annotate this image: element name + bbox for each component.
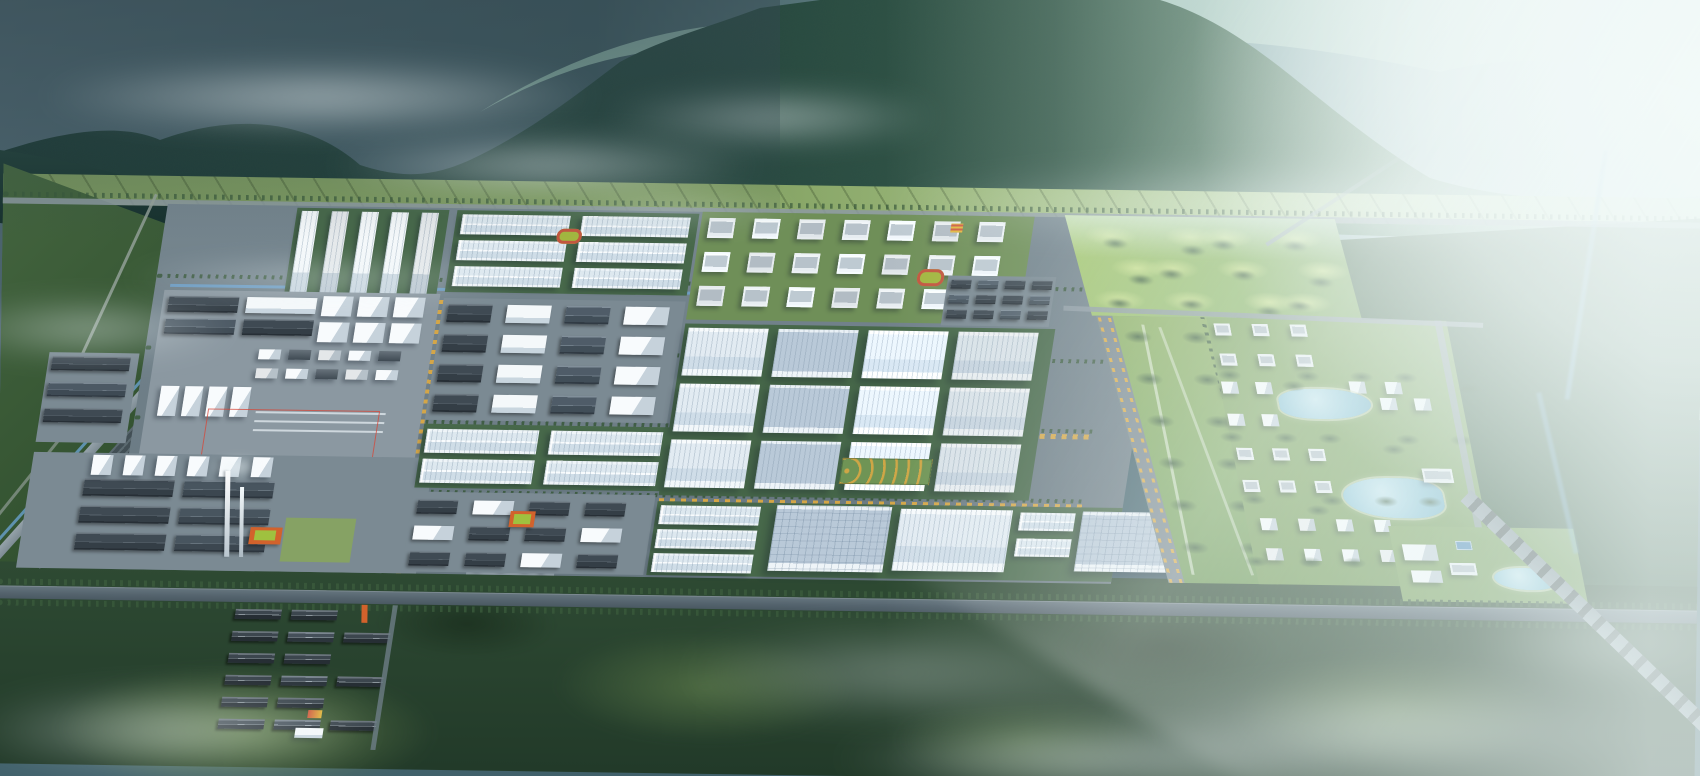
factory-hall bbox=[43, 408, 123, 423]
farmland-fringe bbox=[3, 173, 1700, 228]
unit-roof bbox=[500, 335, 547, 354]
unit-roof bbox=[441, 334, 488, 353]
apartment-block bbox=[1278, 480, 1296, 492]
tank-farm bbox=[466, 528, 561, 575]
logistics-hall bbox=[951, 332, 1038, 381]
tree-clump bbox=[1449, 435, 1475, 446]
tree-clump bbox=[1229, 270, 1258, 281]
mega-hall bbox=[1074, 511, 1193, 573]
tree-clump bbox=[1101, 238, 1130, 249]
tree-clump bbox=[1237, 542, 1269, 555]
mega-hall bbox=[891, 509, 1013, 573]
color-accent bbox=[307, 710, 322, 718]
yard-road bbox=[370, 605, 398, 750]
tree-clump bbox=[1273, 432, 1299, 443]
tree-clump bbox=[1122, 330, 1154, 343]
mixed-industry-block bbox=[425, 298, 686, 423]
apartment-block bbox=[1236, 448, 1254, 460]
golf-haze bbox=[1065, 215, 1346, 261]
storage-shed bbox=[228, 653, 276, 664]
apartment-block bbox=[1374, 520, 1392, 532]
cloud-bank bbox=[600, 90, 940, 145]
forest-mist bbox=[1100, 688, 1660, 776]
storage-tank-small bbox=[538, 563, 548, 572]
slant-bar-warehouses bbox=[283, 208, 450, 306]
plant-midrise bbox=[353, 323, 386, 343]
logistics-hall bbox=[861, 330, 948, 379]
road-tree-line bbox=[145, 346, 1106, 364]
tree-clump bbox=[1341, 557, 1367, 568]
process-units bbox=[378, 351, 402, 361]
apartment-block bbox=[1380, 550, 1398, 562]
storage-shed-yard bbox=[204, 603, 412, 753]
dormitory-court-block bbox=[887, 221, 916, 241]
tree-clump bbox=[1417, 496, 1443, 507]
tree-clump bbox=[1179, 541, 1211, 554]
tall-silo bbox=[123, 455, 146, 475]
unit-roof bbox=[1031, 281, 1052, 290]
main-mountain-texture bbox=[0, 0, 1700, 245]
chimney bbox=[224, 471, 230, 557]
sky-and-mountains-backdrop bbox=[0, 0, 1700, 776]
red-boundary-line bbox=[200, 408, 380, 460]
storage-tank bbox=[498, 533, 516, 549]
dormitory-court-block bbox=[696, 286, 725, 306]
industrial-park-base bbox=[111, 204, 1168, 584]
unit-roof bbox=[491, 395, 538, 414]
cloud-bank bbox=[330, 135, 760, 195]
apartment-block bbox=[1261, 414, 1279, 426]
moss-patch bbox=[894, 695, 1155, 776]
apartment-block bbox=[1260, 518, 1278, 530]
tall-silo bbox=[187, 456, 210, 476]
residential-ring-road bbox=[1434, 321, 1494, 588]
plant-midrise bbox=[321, 296, 354, 316]
unit-roof bbox=[614, 367, 661, 386]
school-building bbox=[1449, 563, 1477, 575]
yellow-tree-avenue bbox=[396, 298, 444, 573]
long-hall-roof bbox=[424, 429, 540, 455]
tree-clump bbox=[1203, 415, 1235, 428]
storage-shed bbox=[273, 720, 321, 731]
unit-roof bbox=[559, 336, 606, 355]
tree-clump bbox=[1255, 306, 1284, 317]
sun-glare-core bbox=[1050, 0, 1700, 580]
unit-roof bbox=[412, 526, 454, 541]
dormitory-court-block bbox=[791, 253, 820, 273]
tree-clump bbox=[1156, 457, 1188, 470]
running-track bbox=[916, 269, 946, 286]
dormitory-court-block bbox=[966, 290, 995, 310]
railway-yard bbox=[20, 260, 301, 569]
unit-roof bbox=[618, 337, 665, 356]
golf-mound bbox=[1081, 225, 1138, 246]
boiler-house bbox=[181, 386, 204, 416]
country-lane bbox=[0, 384, 104, 530]
sports-court bbox=[1455, 541, 1473, 550]
tree-clump bbox=[1226, 500, 1258, 513]
low-row-housing bbox=[1400, 542, 1436, 551]
apartment-block bbox=[1213, 323, 1231, 335]
logistics-hall bbox=[771, 329, 858, 378]
atmosphere-overlay bbox=[0, 0, 1700, 776]
dormitory-court-block bbox=[932, 221, 961, 241]
cloud-bank bbox=[40, 60, 600, 132]
apartment-block bbox=[1257, 354, 1275, 366]
left-forest-slope bbox=[0, 163, 343, 604]
plant-hall bbox=[242, 319, 314, 336]
tree-clump bbox=[1177, 299, 1206, 310]
apartment-block bbox=[1219, 353, 1237, 365]
unit-roof bbox=[468, 526, 510, 541]
unit-roof bbox=[505, 305, 552, 324]
long-hall-roof bbox=[543, 461, 659, 487]
apartment-block bbox=[1304, 549, 1322, 561]
white-shed bbox=[294, 728, 324, 738]
unit-roof bbox=[524, 527, 566, 542]
boulevard bbox=[1096, 316, 1184, 583]
chemical-plant-lower bbox=[16, 452, 434, 574]
boiler-house bbox=[205, 386, 228, 416]
tree-line-edge bbox=[1200, 317, 1276, 584]
tree-clump bbox=[1349, 371, 1375, 382]
apartment-block bbox=[1380, 398, 1398, 410]
lower-mixed-block bbox=[401, 492, 655, 575]
unit-roof bbox=[580, 528, 622, 543]
residential-quarter bbox=[1206, 317, 1499, 587]
golf-mound bbox=[1144, 258, 1201, 279]
pipe-rack bbox=[253, 429, 383, 433]
storage-shed bbox=[336, 676, 384, 687]
pipe-rack bbox=[254, 420, 384, 424]
tree-clump bbox=[1168, 499, 1200, 512]
tree-clump bbox=[1217, 369, 1243, 380]
unit-roof bbox=[555, 366, 602, 385]
logistics-hall bbox=[844, 442, 931, 491]
south-hall-row bbox=[646, 501, 1122, 582]
sun-light-beam bbox=[859, 0, 1700, 776]
se-highway bbox=[1461, 490, 1700, 736]
apartment-block bbox=[1336, 519, 1354, 531]
dormitory-court-block bbox=[836, 254, 865, 274]
dormitory-court-block bbox=[707, 218, 736, 238]
golf-mound bbox=[1241, 292, 1298, 313]
plant-hall bbox=[167, 296, 239, 313]
unit-roof bbox=[975, 295, 996, 304]
low-row-housing bbox=[1442, 543, 1478, 552]
factory-hall bbox=[182, 480, 275, 498]
tree-clump bbox=[1191, 373, 1223, 386]
unit-roof bbox=[564, 306, 611, 325]
aerial-industrial-park-rendering bbox=[0, 0, 1700, 776]
right-atmospheric-haze bbox=[0, 0, 1700, 776]
warehouse-bar bbox=[288, 211, 319, 299]
unit-roof bbox=[584, 502, 626, 517]
boiler-house bbox=[229, 387, 252, 417]
dormitory-court-block bbox=[786, 287, 815, 307]
apartment-block bbox=[1308, 449, 1326, 461]
process-units bbox=[315, 369, 339, 379]
process-units bbox=[258, 349, 282, 359]
golf-mound bbox=[1277, 292, 1334, 313]
plant-hall bbox=[245, 297, 317, 314]
factory-hall bbox=[47, 382, 127, 397]
tree-clump bbox=[1219, 431, 1245, 442]
dark-copse bbox=[376, 587, 557, 660]
pond bbox=[1276, 388, 1374, 419]
long-hall-roof bbox=[419, 459, 535, 485]
warehouse-roof bbox=[456, 240, 567, 262]
tree-clump bbox=[1305, 505, 1331, 516]
unit-roof bbox=[472, 500, 514, 515]
unit-roof bbox=[973, 310, 994, 319]
logistics-hall-grid bbox=[659, 324, 1056, 501]
apartment-block bbox=[1221, 382, 1239, 394]
warehouse-roof bbox=[572, 268, 683, 290]
unit-roof bbox=[496, 365, 543, 384]
logistics-hall bbox=[763, 385, 850, 434]
forest-mist bbox=[0, 690, 380, 772]
factory-hall bbox=[174, 534, 267, 552]
factory-hall bbox=[82, 479, 175, 497]
dormitory-court-block bbox=[842, 220, 871, 240]
golf-mound bbox=[1267, 228, 1324, 249]
country-lane bbox=[65, 194, 158, 390]
tree-clump bbox=[1405, 568, 1431, 579]
warehouse-bar bbox=[348, 212, 379, 300]
unit-roof bbox=[946, 309, 967, 318]
dormitory-court-block bbox=[876, 288, 905, 308]
apartment-block bbox=[1349, 381, 1367, 393]
warehouse-bar bbox=[378, 212, 409, 300]
golf-mound bbox=[1197, 227, 1254, 248]
process-units bbox=[318, 350, 342, 360]
tree-clump bbox=[1105, 298, 1134, 309]
tree-clump bbox=[1180, 331, 1212, 344]
tall-silo bbox=[91, 455, 114, 475]
unit-roof bbox=[437, 364, 484, 383]
ne-country-road bbox=[1265, 134, 1435, 247]
tall-silo bbox=[219, 457, 242, 477]
top-left-cloud-shade bbox=[0, 0, 780, 240]
plant-midrise bbox=[317, 322, 350, 342]
dormitory-court-block bbox=[921, 289, 950, 309]
tree-clump bbox=[1456, 383, 1482, 394]
dormitory-court-block bbox=[977, 222, 1006, 242]
tree-clump bbox=[1295, 371, 1321, 382]
storage-tank-small bbox=[542, 539, 552, 548]
top-road-tree-line bbox=[3, 191, 1700, 221]
tree-clump bbox=[1127, 274, 1156, 285]
tree-clump bbox=[1481, 507, 1507, 518]
plant-midrise bbox=[389, 323, 422, 343]
twin-long-halls bbox=[414, 424, 676, 492]
apartment-block bbox=[1298, 519, 1316, 531]
storage-shed bbox=[329, 720, 377, 731]
boiler-house bbox=[157, 386, 180, 416]
apartment-block bbox=[1272, 448, 1290, 460]
process-units bbox=[288, 350, 312, 360]
tree-clump bbox=[1285, 300, 1314, 311]
storage-tank-small bbox=[540, 551, 550, 560]
factory-hall bbox=[178, 507, 271, 525]
storage-tank bbox=[519, 555, 537, 571]
unit-roof bbox=[464, 552, 506, 567]
unit-roof bbox=[1000, 310, 1021, 319]
dormitory-court-block bbox=[752, 219, 781, 239]
logistics-hall bbox=[943, 387, 1030, 436]
moss-patch bbox=[54, 662, 436, 776]
color-roof-accent bbox=[950, 223, 963, 232]
upper-warehouse-block bbox=[445, 210, 700, 295]
orange-roof-building bbox=[508, 511, 535, 527]
apartment-block bbox=[1342, 549, 1360, 561]
tree-clump bbox=[1419, 558, 1445, 569]
tree-clump bbox=[1393, 372, 1419, 383]
storage-shed bbox=[224, 675, 272, 686]
golf-mound bbox=[1161, 291, 1218, 312]
dark-factory-strip bbox=[36, 352, 140, 443]
park-path bbox=[1158, 327, 1254, 575]
logistics-hall bbox=[673, 383, 760, 432]
unit-roof bbox=[408, 551, 450, 566]
unit-roof bbox=[1004, 280, 1025, 289]
tree-clump bbox=[1319, 495, 1345, 506]
park-canal bbox=[170, 284, 690, 295]
apartment-block bbox=[1251, 324, 1269, 336]
unit-roof bbox=[528, 501, 570, 516]
yellow-tree-row bbox=[423, 425, 1094, 440]
main-road-tree-line bbox=[0, 578, 1697, 609]
dormitory-court-block bbox=[926, 255, 955, 275]
forest-stream bbox=[1565, 150, 1609, 400]
logistics-hall bbox=[934, 443, 1021, 492]
tree-clump bbox=[1157, 269, 1186, 280]
landscaped-garden bbox=[839, 458, 933, 485]
warehouse-roof bbox=[658, 505, 761, 525]
tree-clump bbox=[1395, 434, 1421, 445]
school-campus bbox=[1388, 526, 1588, 604]
storage-tank bbox=[471, 554, 489, 570]
process-units bbox=[348, 351, 372, 361]
cloud-bank bbox=[540, 190, 800, 230]
running-track bbox=[556, 229, 583, 244]
orange-roof-building bbox=[248, 527, 283, 544]
storage-shed bbox=[231, 631, 279, 642]
foothill-haze bbox=[880, 165, 1700, 245]
forest-mist bbox=[680, 628, 1110, 718]
dormitory-court-block bbox=[746, 252, 775, 272]
warehouse-roof bbox=[452, 266, 563, 288]
long-hall-roof bbox=[548, 431, 664, 457]
plant-midrise bbox=[393, 297, 426, 317]
unit-roof bbox=[520, 553, 562, 568]
unit-roof bbox=[1002, 295, 1023, 304]
unit-roof bbox=[576, 554, 618, 569]
school-building bbox=[1402, 544, 1439, 561]
green-roof-court bbox=[254, 530, 277, 540]
golf-mound bbox=[1108, 258, 1165, 279]
tree-clump bbox=[1241, 494, 1267, 505]
golf-mound bbox=[1294, 261, 1351, 282]
tree-clump bbox=[1381, 444, 1407, 455]
tree-clump bbox=[1178, 245, 1207, 256]
apartment-block bbox=[1289, 325, 1307, 337]
tree-clump bbox=[1281, 240, 1310, 251]
warehouse-roof bbox=[460, 214, 571, 236]
storage-tank bbox=[495, 555, 513, 571]
storage-shed bbox=[287, 632, 335, 643]
golf-mound bbox=[1091, 290, 1148, 311]
tall-silo bbox=[155, 456, 178, 476]
park-path bbox=[1141, 325, 1194, 575]
unit-roof bbox=[948, 294, 969, 303]
process-units bbox=[375, 370, 399, 380]
storage-shed bbox=[221, 697, 269, 708]
dormitory-campus bbox=[686, 212, 1035, 325]
plant-lawn bbox=[280, 518, 357, 563]
moss-patch bbox=[1235, 650, 1557, 775]
moss-patch bbox=[555, 630, 857, 744]
apartment-block bbox=[1227, 414, 1245, 426]
far-ridge bbox=[480, 0, 1700, 112]
storage-shed bbox=[284, 654, 332, 665]
dormitory-court-block bbox=[701, 252, 730, 272]
unit-roof bbox=[623, 307, 670, 326]
plant-midrise bbox=[357, 297, 390, 317]
unit-roof bbox=[432, 394, 479, 413]
warehouse-roof bbox=[654, 529, 757, 549]
unit-roof bbox=[609, 396, 656, 415]
green-roof-court bbox=[513, 514, 532, 524]
cloud-bank bbox=[120, 255, 540, 301]
tree-clump bbox=[1281, 380, 1307, 391]
main-mountain bbox=[0, 0, 1700, 245]
yellow-tree-row bbox=[1107, 316, 1182, 583]
apartment-block bbox=[1422, 468, 1455, 482]
road-tree-line bbox=[123, 485, 1084, 503]
unit-roof bbox=[977, 280, 998, 289]
warehouse-roof bbox=[580, 216, 691, 238]
logistics-hall bbox=[853, 386, 940, 435]
apartment-block bbox=[1414, 398, 1432, 410]
unit-roof bbox=[950, 279, 971, 288]
logistics-hall bbox=[681, 328, 768, 377]
chimney-steam bbox=[209, 457, 264, 478]
tree-clump bbox=[1209, 239, 1238, 250]
yellow-tree-row bbox=[372, 494, 1083, 510]
forest-mist bbox=[1480, 600, 1700, 685]
unit-roof bbox=[446, 304, 493, 323]
tree-clump bbox=[1134, 372, 1166, 385]
golf-green-buffer bbox=[1065, 215, 1362, 319]
road-tree-line bbox=[156, 274, 1117, 292]
storage-shed bbox=[217, 719, 265, 730]
low-row-housing bbox=[1445, 559, 1481, 568]
apartment-block bbox=[1255, 382, 1273, 394]
dormitory-court-block bbox=[831, 288, 860, 308]
main-road-tree-line bbox=[0, 599, 1697, 630]
main-boulevard-road bbox=[0, 585, 1697, 623]
right-perimeter-forest bbox=[1229, 206, 1700, 776]
west-highway bbox=[0, 255, 267, 565]
yellow-tree-row bbox=[1097, 316, 1172, 583]
tree-clump bbox=[1473, 559, 1499, 570]
factory-hall bbox=[78, 506, 171, 524]
sky bbox=[0, 0, 1700, 420]
crane-orange bbox=[361, 605, 367, 623]
warehouse-roof bbox=[1014, 538, 1072, 557]
